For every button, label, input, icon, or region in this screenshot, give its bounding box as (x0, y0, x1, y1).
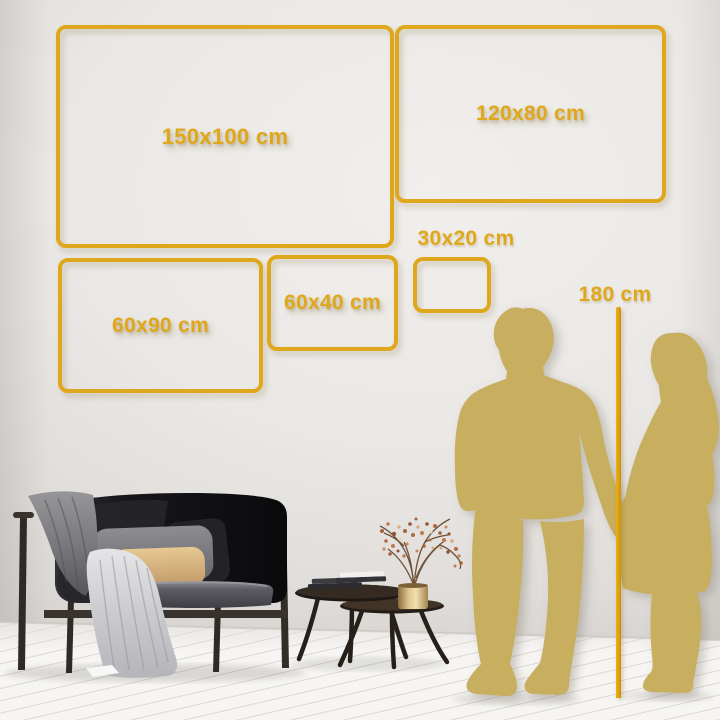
man-right-leg (524, 519, 584, 695)
height-reference-label-wrap: 180 cm (553, 283, 677, 307)
frame-60x90-outline: 60x90 cm (58, 258, 263, 393)
woman-body (620, 333, 718, 595)
frame-30x20-outline (413, 257, 491, 313)
man-silhouette (455, 307, 628, 696)
frame-150x100-label: 150x100 cm (162, 124, 289, 150)
height-reference-label: 180 cm (578, 283, 651, 306)
frame-60x90-label: 60x90 cm (112, 314, 209, 338)
frame-150x100-outline: 150x100 cm (56, 25, 394, 248)
woman-legs (643, 592, 701, 693)
frame-30x20-label: 30x20 cm (418, 227, 515, 250)
man-body (455, 307, 628, 539)
woman-silhouette (613, 333, 719, 693)
size-guide-scene: 150x100 cm 120x80 cm 60x90 cm 60x40 cm 3… (0, 0, 720, 720)
height-pole (616, 307, 621, 698)
frame-30x20-label-wrap: 30x20 cm (404, 227, 528, 251)
frame-120x80-outline: 120x80 cm (395, 25, 666, 203)
frame-60x40-label: 60x40 cm (284, 291, 381, 315)
frame-120x80-label: 120x80 cm (476, 102, 585, 126)
frame-60x40-outline: 60x40 cm (267, 255, 398, 351)
man-left-leg (466, 504, 523, 696)
